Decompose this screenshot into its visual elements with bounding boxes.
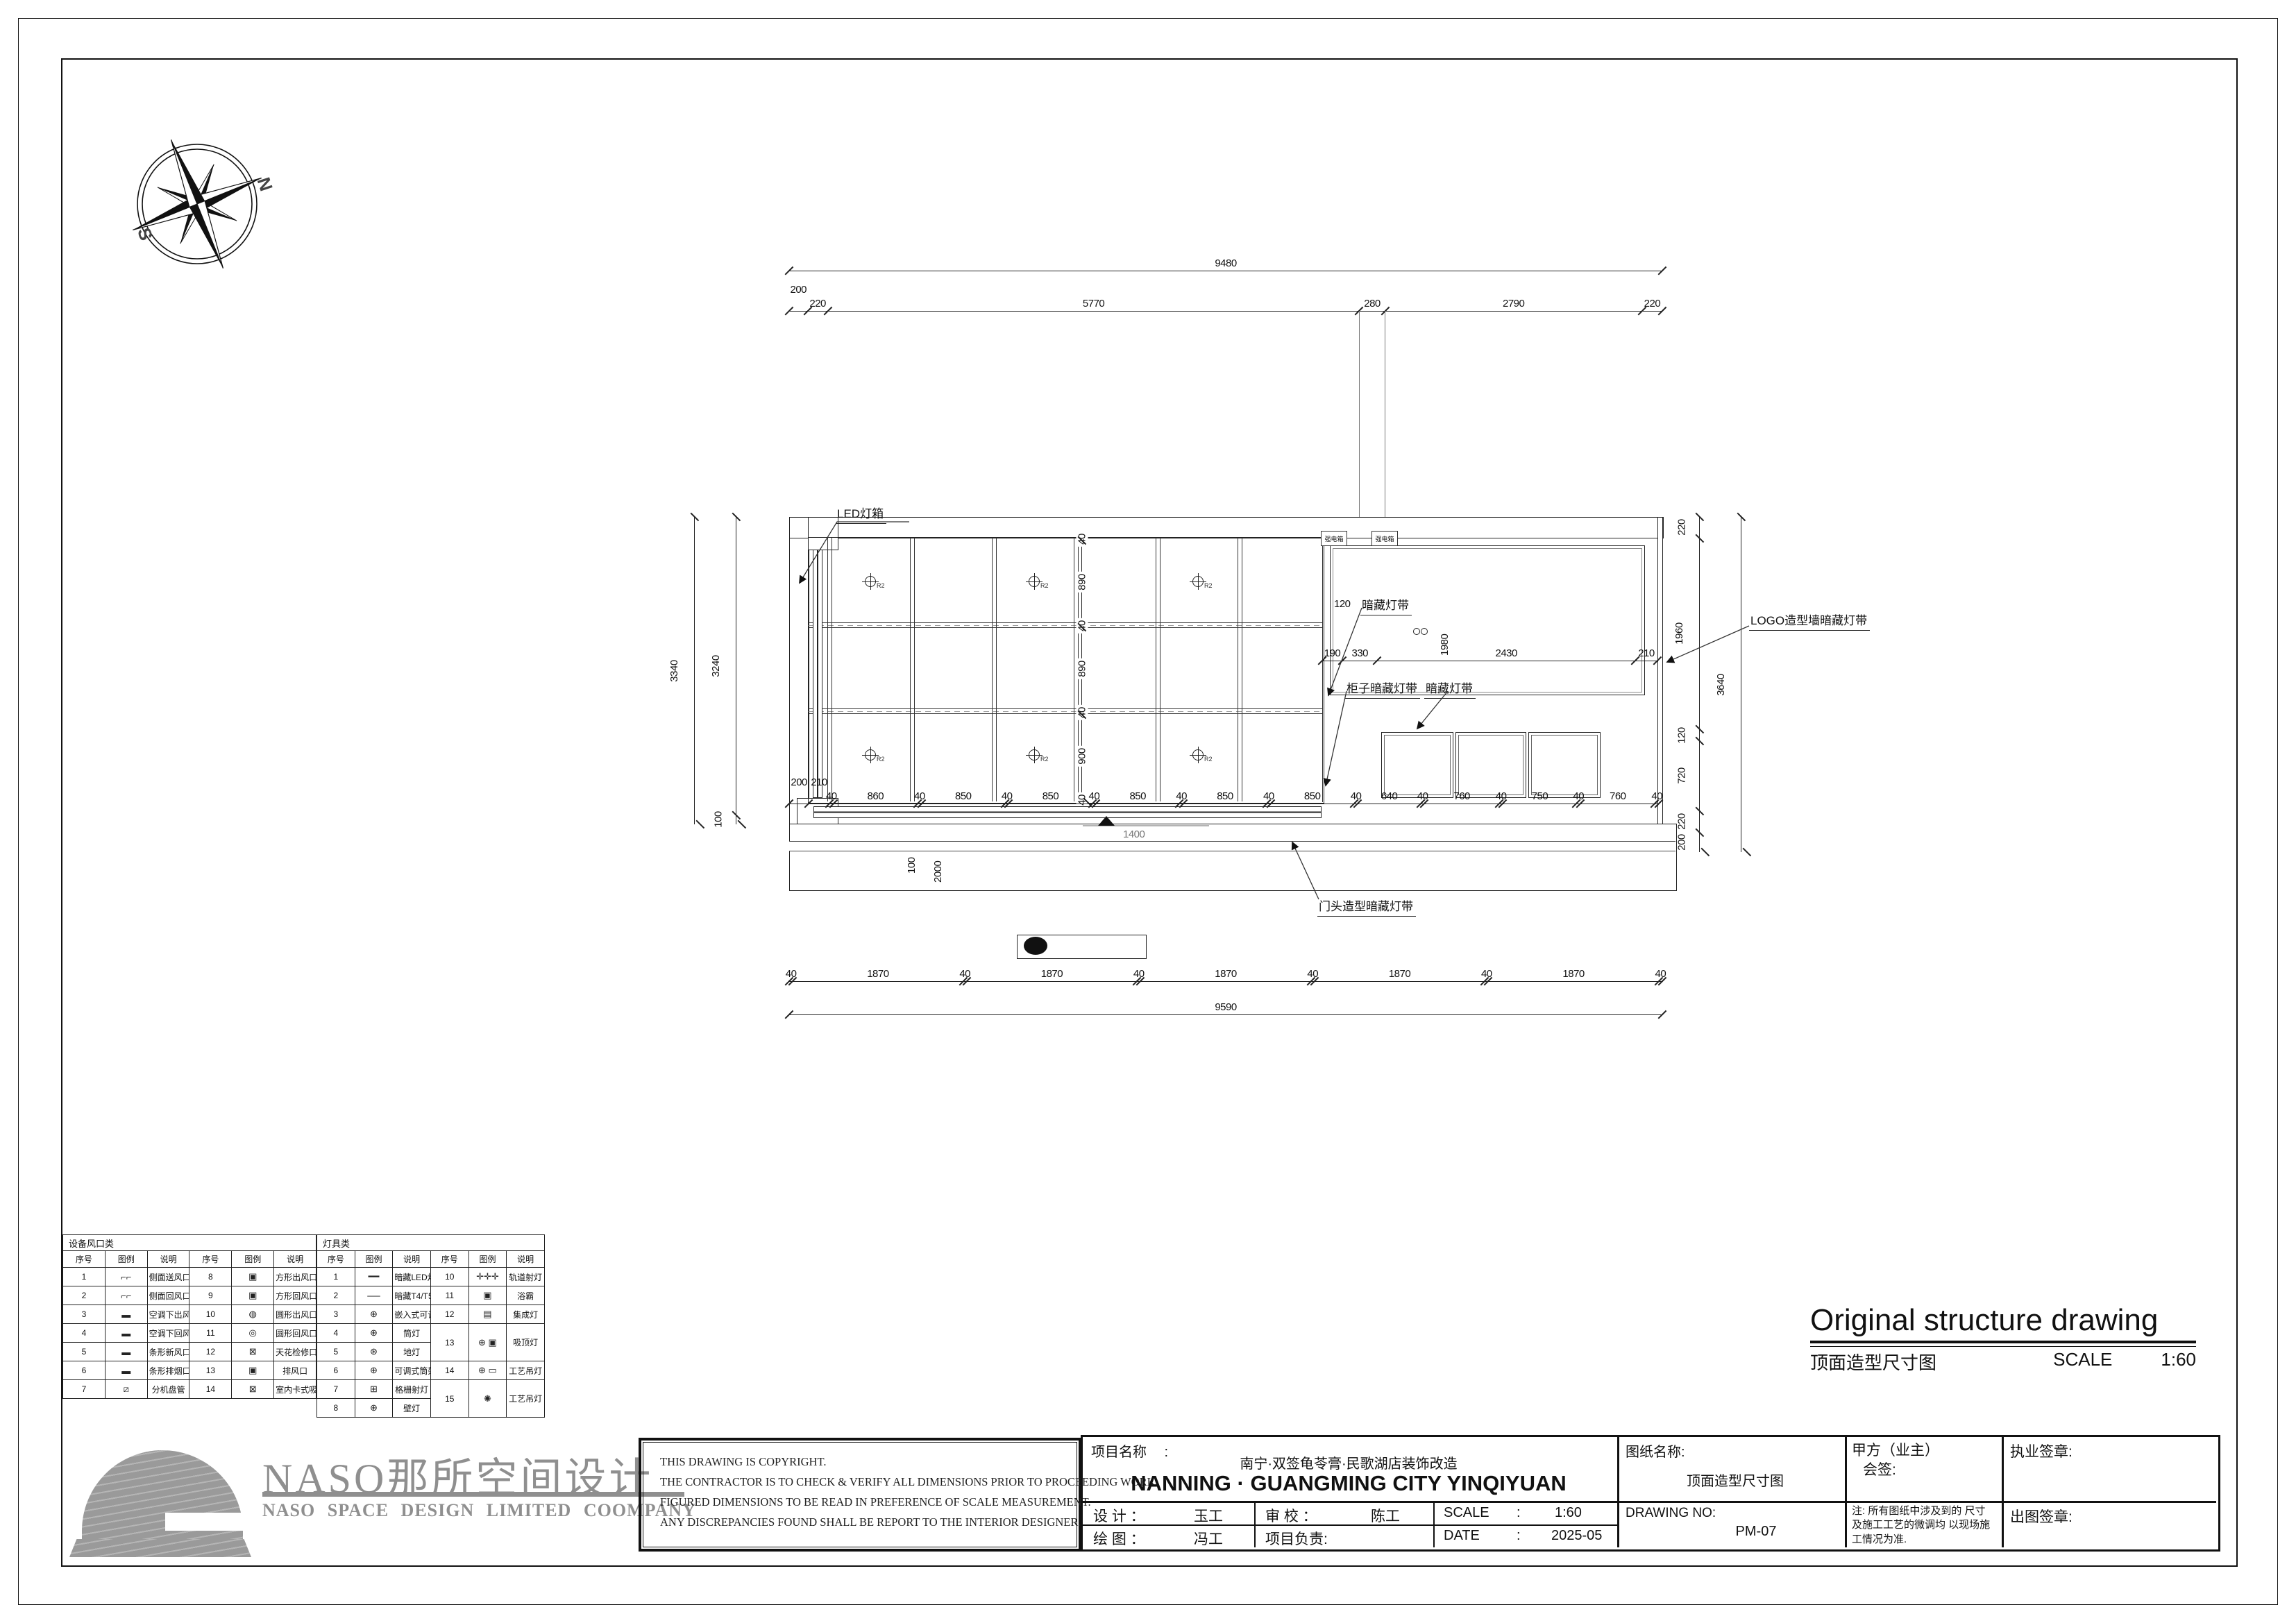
legend-cell: 轨道射灯	[507, 1268, 545, 1286]
legend-cell: ▣	[232, 1361, 274, 1380]
legend-cell: ──	[355, 1286, 393, 1305]
legend-cell: 6	[63, 1361, 105, 1380]
legend-cell: 可调式筒架射灯	[393, 1361, 431, 1380]
design-value: 玉工	[1194, 1505, 1223, 1526]
legend-cell: 浴霸	[507, 1286, 545, 1305]
legend-cell: 筒灯	[393, 1324, 431, 1343]
legend-cell: ✛✛✛	[469, 1268, 507, 1286]
drawing-no-value: PM-07	[1736, 1524, 1777, 1540]
legend-cell: 2	[317, 1286, 355, 1305]
legend-cell: ⊕	[355, 1324, 393, 1343]
legend-cell: 格栅射灯	[393, 1380, 431, 1399]
sheet-title-cn: 顶面造型尺寸图	[1810, 1349, 1936, 1375]
legend-cell: ▣	[232, 1268, 274, 1286]
legend-cell: 13	[189, 1361, 232, 1380]
project-label: 项目名称 :	[1091, 1441, 1168, 1461]
legend-cell: 12	[430, 1305, 469, 1324]
legend-cell: 侧面回风口	[147, 1286, 189, 1305]
legend-cell: 工艺吊灯	[507, 1361, 545, 1380]
project-name-cn: 南宁·双签龟苓膏·民歌湖店装饰改造	[1240, 1452, 1457, 1472]
drawing-sheet: N S 9480 20022057702802790220 3340 32401…	[0, 0, 2296, 1623]
legend-cell: 灯具类	[317, 1235, 545, 1251]
legend-cell: 吸顶灯	[507, 1324, 545, 1361]
naso-logo-notch	[165, 1513, 246, 1531]
legend-cell: 13	[430, 1324, 469, 1361]
legend-cell: ⊕	[355, 1305, 393, 1324]
legend-cell: 条形新风口	[147, 1343, 189, 1361]
sheet-subtitle: 顶面造型尺寸图 SCALE 1:60	[1810, 1349, 2196, 1375]
vent-legend-table: 设备风口类序号图例说明序号图例说明1⌐⌐侧面送风口8▣方形出风口2⌐⌐侧面回风口…	[62, 1234, 316, 1399]
legend-cell: 图例	[469, 1251, 507, 1268]
legend-cell: 工艺吊灯	[507, 1380, 545, 1418]
legend-cell: 10	[430, 1268, 469, 1286]
light-legend-table: 灯具类序号图例说明序号图例说明1━━暗藏LED灯带10✛✛✛轨道射灯2──暗藏T…	[316, 1234, 545, 1418]
copyright-line: THE CONTRACTOR IS TO CHECK & VERIFY ALL …	[660, 1472, 1077, 1493]
legend-cell: 暗藏LED灯带	[393, 1268, 431, 1286]
legend-cell: 侧面送风口	[147, 1268, 189, 1286]
legend-cell: ◎	[232, 1324, 274, 1343]
legend-cell: ⌐⌐	[105, 1286, 147, 1305]
legend-cell: 4	[63, 1324, 105, 1343]
draw-value: 冯工	[1194, 1528, 1223, 1549]
legend-cell: 集成灯	[507, 1305, 545, 1324]
legend-cell: ⊞	[355, 1380, 393, 1399]
legend-cell: ⌐⌐	[105, 1268, 147, 1286]
pm-label: 项目负责:	[1265, 1528, 1328, 1549]
legend-cell: 方形回风口	[274, 1286, 316, 1305]
sheet-title-en: Original structure drawing	[1810, 1303, 2196, 1343]
legend-cell: 空调下出风口	[147, 1305, 189, 1324]
owner-label: 甲方（业主）	[1852, 1439, 1939, 1460]
scale-value: 1:60	[1555, 1505, 1582, 1521]
legend-cell: 序号	[189, 1251, 232, 1268]
scale-label: SCALE	[1444, 1505, 1489, 1521]
legend-cell: 天花检修口	[274, 1343, 316, 1361]
sheet-name-value: 顶面造型尺寸图	[1687, 1470, 1784, 1490]
legend-cell: 暗藏T4/T5日光灯管	[393, 1286, 431, 1305]
legend-cell: 1	[317, 1268, 355, 1286]
legend-cell: ⊛	[355, 1343, 393, 1361]
legend-cell: 设备风口类	[63, 1235, 316, 1251]
copyright-line: ANY DISCREPANCIES FOUND SHALL BE REPORT …	[660, 1513, 1077, 1533]
legend-cell: 方形出风口	[274, 1268, 316, 1286]
scale-value: 1:60	[2161, 1349, 2196, 1375]
brand-name-en: NASO SPACE DESIGN LIMITED COOMPANY	[262, 1500, 684, 1521]
date-label: DATE	[1444, 1528, 1480, 1544]
copyright-box: THIS DRAWING IS COPYRIGHT. THE CONTRACTO…	[639, 1438, 1081, 1552]
legend-cell: ▬	[105, 1343, 147, 1361]
legend-cell: 7	[317, 1380, 355, 1399]
check-value: 陈工	[1371, 1505, 1400, 1526]
legend-cell: ⊕	[355, 1361, 393, 1380]
legend-cell: 空调下回风口	[147, 1324, 189, 1343]
naso-logo-base	[69, 1539, 251, 1557]
legend-cell: 3	[317, 1305, 355, 1324]
legend-cell: ⊕ ▣	[469, 1324, 507, 1361]
legend-cell: 圆形出风口	[274, 1305, 316, 1324]
note-text: 注: 所有图纸中涉及到的 尺寸及施工工艺的微调均 以现场施工情况为准.	[1852, 1504, 1995, 1547]
legend-cell: ⧄	[105, 1380, 147, 1399]
legend-cell: 圆形回风口	[274, 1324, 316, 1343]
legend-cell: 4	[317, 1324, 355, 1343]
legend-cell: 序号	[430, 1251, 469, 1268]
legend-cell: 3	[63, 1305, 105, 1324]
legend-cell: 7	[63, 1380, 105, 1399]
legend-cell: 壁灯	[393, 1399, 431, 1418]
legend-cell: 12	[189, 1343, 232, 1361]
legend-cell: ▣	[232, 1286, 274, 1305]
legend-cell: 排风口	[274, 1361, 316, 1380]
copyright-line: THIS DRAWING IS COPYRIGHT.	[660, 1452, 1077, 1472]
legend-cell: 说明	[507, 1251, 545, 1268]
legend-cell: 6	[317, 1361, 355, 1380]
date-value: 2025-05	[1551, 1528, 1602, 1544]
brand-divider	[262, 1492, 684, 1497]
legend-cell: 5	[317, 1343, 355, 1361]
copyright-line: FIGURED DIMENSIONS TO BE READ IN PREFERE…	[660, 1493, 1077, 1513]
scale-label: SCALE	[2053, 1349, 2112, 1375]
project-name-en: NANNING · GUANGMING CITY YINQIYUAN	[1131, 1471, 1567, 1496]
issue-seal-label: 出图签章:	[2010, 1506, 2073, 1527]
license-seal-label: 执业签章:	[2010, 1441, 2073, 1461]
legend-cell: 图例	[355, 1251, 393, 1268]
legend-cell: ▬	[105, 1305, 147, 1324]
draw-label: 绘 图 ：	[1093, 1528, 1145, 1549]
legend-cell: 14	[430, 1361, 469, 1380]
legend-cell: 1	[63, 1268, 105, 1286]
legend-cell: 室内卡式吸顶空调机	[274, 1380, 316, 1399]
legend-cell: 8	[317, 1399, 355, 1418]
legend-cell: ▣	[469, 1286, 507, 1305]
legend-cell: 地灯	[393, 1343, 431, 1361]
legend-cell: ▬	[105, 1361, 147, 1380]
sheet-name-label: 图纸名称:	[1626, 1441, 1685, 1461]
legend-cell: ◍	[232, 1305, 274, 1324]
legend-cell: 嵌入式可调节射灯	[393, 1305, 431, 1324]
legend-cell: 说明	[393, 1251, 431, 1268]
legend-cell: ⊕	[355, 1399, 393, 1418]
legend-cell: 15	[430, 1380, 469, 1418]
legend-cell: 说明	[274, 1251, 316, 1268]
legend-cell: 序号	[63, 1251, 105, 1268]
legend-cell: 图例	[232, 1251, 274, 1268]
design-label: 设 计 ：	[1093, 1505, 1145, 1526]
legend-cell: 5	[63, 1343, 105, 1361]
legend-cell: 说明	[147, 1251, 189, 1268]
owner-sub-label: 会签:	[1863, 1459, 1896, 1479]
legend-cell: 2	[63, 1286, 105, 1305]
date-colon: :	[1517, 1528, 1521, 1544]
legend-cell: 图例	[105, 1251, 147, 1268]
scale-colon: :	[1517, 1505, 1521, 1521]
legend-cell: ⊠	[232, 1343, 274, 1361]
legend-cell: 11	[430, 1286, 469, 1305]
legend-cell: 14	[189, 1380, 232, 1399]
legend-cell: ━━	[355, 1268, 393, 1286]
legend-cell: 分机盘管	[147, 1380, 189, 1399]
legend-cell: ▬	[105, 1324, 147, 1343]
legend-cell: ⊠	[232, 1380, 274, 1399]
legend-cell: 条形排烟口	[147, 1361, 189, 1380]
legend-cell: 10	[189, 1305, 232, 1324]
legend-cell: ⊕ ▭	[469, 1361, 507, 1380]
legend-cell: ✺	[469, 1380, 507, 1418]
legend-cell: 9	[189, 1286, 232, 1305]
legend-cell: 11	[189, 1324, 232, 1343]
drawing-no-label: DRAWING NO:	[1626, 1506, 1716, 1521]
legend-cell: ▤	[469, 1305, 507, 1324]
legend-cell: 序号	[317, 1251, 355, 1268]
legend-cell: 8	[189, 1268, 232, 1286]
check-label: 审 校 ：	[1265, 1505, 1317, 1526]
